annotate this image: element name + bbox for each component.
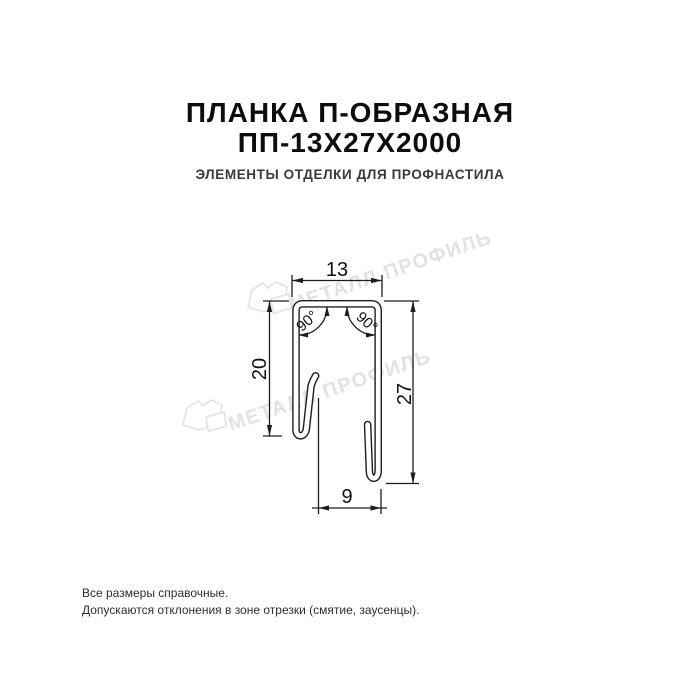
dim-label-bottom-width: 9 (341, 486, 352, 508)
footer-note-line2: Допускаются отклонения в зоне отрезки (с… (82, 602, 419, 619)
dim-label-left-height: 20 (249, 358, 271, 380)
arrow-down-icon (267, 425, 272, 436)
arrow-left-icon (319, 505, 330, 510)
footer-note-line1: Все размеры справочные. (82, 585, 419, 602)
dim-label-right-height: 27 (394, 383, 416, 405)
arrow-right-icon (371, 505, 382, 510)
dimension-right-height: 27 (384, 301, 419, 484)
product-image: ПЛАНКА П-ОБРАЗНАЯ ПП-13Х27Х2000 ЭЛЕМЕНТЫ… (0, 0, 700, 700)
arrow-up-icon (410, 301, 415, 312)
dim-label-top-width: 13 (326, 259, 348, 281)
arrow-left-icon (292, 278, 303, 283)
arrow-down-icon (410, 473, 415, 484)
footer-notes: Все размеры справочные. Допускаются откл… (82, 585, 419, 618)
